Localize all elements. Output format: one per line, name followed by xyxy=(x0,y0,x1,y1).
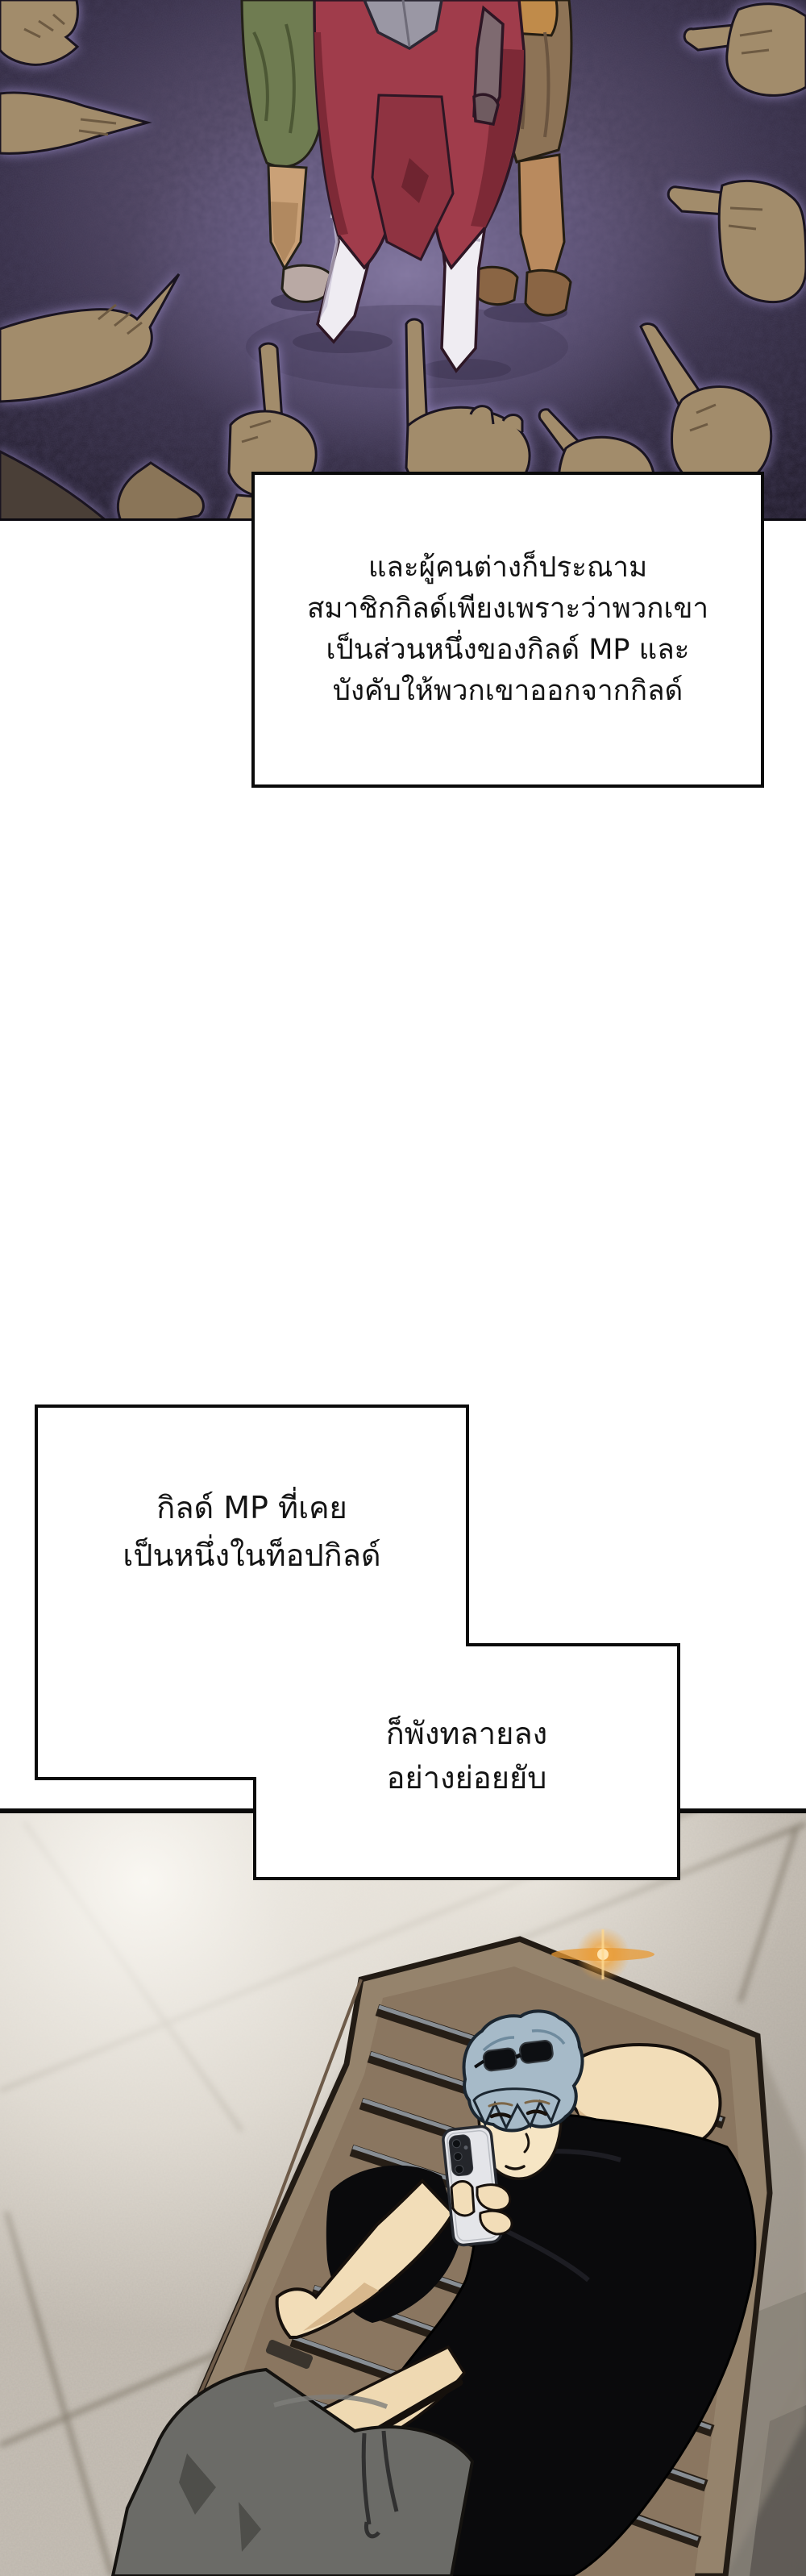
brown-foot-left xyxy=(474,267,517,304)
panel-photo-lounging-man xyxy=(0,1808,806,2576)
narration-box-3: ก็พังทลายลง อย่างย่อยยับ xyxy=(255,1645,679,1879)
brown-foot-right xyxy=(526,270,571,315)
panel-accusation-artwork-main xyxy=(0,0,806,521)
narration-text-1: และผู้คนต่างก็ประณาม สมาชิกกิลด์เพียงเพร… xyxy=(255,475,761,784)
narration-box-1: และผู้คนต่างก็ประณาม สมาชิกกิลด์เพียงเพร… xyxy=(251,472,764,788)
narration-text-3: ก็พังทลายลง อย่างย่อยยับ xyxy=(386,1712,547,1812)
hand-top-left-corner-icon xyxy=(0,0,77,65)
